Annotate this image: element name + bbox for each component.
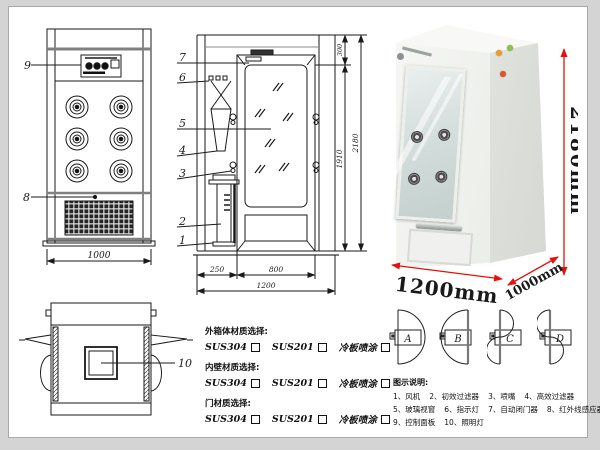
door-frame bbox=[237, 55, 315, 251]
door-config-c: C bbox=[487, 306, 531, 368]
material-options-row: SUS304 SUS201 冷板喷涂 bbox=[205, 340, 389, 354]
legend-item: 2、初效过滤器 bbox=[429, 390, 479, 403]
door-config-label: A bbox=[403, 334, 411, 345]
part-label-1: 1 bbox=[179, 234, 186, 247]
nozzles-front bbox=[66, 96, 132, 182]
fan-unit bbox=[209, 175, 239, 246]
legend-item: 5、玻璃视窗 bbox=[393, 403, 435, 416]
dim-1000: 1000 bbox=[88, 251, 111, 261]
material-section-title: 门材质选择: bbox=[205, 397, 389, 409]
material-option-label: SUS304 bbox=[205, 342, 247, 353]
dim-2180: 2180 bbox=[351, 133, 360, 153]
part-label-2: 2 bbox=[178, 215, 186, 228]
door-config-label: D bbox=[555, 334, 564, 345]
material-section-title: 外箱体材质选择: bbox=[205, 325, 389, 337]
checkbox[interactable] bbox=[318, 415, 327, 424]
part-label-7: 7 bbox=[179, 51, 186, 64]
part-label-3: 3 bbox=[179, 167, 186, 180]
material-option-label: 冷板喷涂 bbox=[339, 376, 377, 390]
material-option-label: SUS201 bbox=[272, 378, 314, 389]
legend-item: 7、自动闭门器 bbox=[488, 403, 538, 416]
checkbox[interactable] bbox=[381, 415, 390, 424]
material-option-label: SUS201 bbox=[272, 414, 314, 425]
legend-item: 8、红外线感应器 bbox=[547, 403, 600, 416]
checkbox[interactable] bbox=[251, 343, 260, 352]
part-label-5: 5 bbox=[179, 117, 186, 130]
checkbox[interactable] bbox=[381, 379, 390, 388]
material-options-row: SUS304 SUS201 冷板喷涂 bbox=[205, 412, 389, 426]
part-label-4: 4 bbox=[178, 144, 186, 157]
door-config-label: B bbox=[453, 334, 461, 345]
material-section-title: 内壁材质选择: bbox=[205, 361, 389, 373]
indicator-lights bbox=[209, 76, 227, 80]
material-option-label: SUS304 bbox=[205, 378, 247, 389]
section-view-drawing: 7 6 5 4 3 2 1 300 1910 2180 250 800 1200 bbox=[167, 19, 379, 309]
dim-800: 800 bbox=[269, 265, 284, 274]
legend-line: 5、玻璃视窗 6、指示灯 7、自动闭门器 8、红外线感应器 bbox=[393, 403, 585, 416]
door-config-d: D bbox=[537, 306, 581, 368]
part-label-10: 10 bbox=[178, 357, 192, 370]
glass-hatch-marks bbox=[255, 83, 293, 173]
legend-item: 3、喷嘴 bbox=[488, 390, 515, 403]
door-config-label: C bbox=[506, 334, 514, 345]
part-label-9: 9 bbox=[24, 59, 31, 72]
dim-1910: 1910 bbox=[335, 149, 344, 168]
return-air-grille bbox=[65, 201, 133, 235]
legend-item: 4、高效过滤器 bbox=[524, 390, 574, 403]
part-label-6: 6 bbox=[179, 71, 186, 84]
material-option-label: SUS304 bbox=[205, 414, 247, 425]
legend: 图示说明: 1、风机 2、初效过滤器 3、喷嘴 4、高效过滤器 5、玻璃视窗 6… bbox=[393, 377, 585, 429]
checkbox[interactable] bbox=[318, 343, 327, 352]
spec-sheet-canvas: 9 8 1000 bbox=[8, 6, 588, 438]
nozzles-section bbox=[230, 114, 319, 173]
dim-1200: 1200 bbox=[256, 281, 275, 290]
legend-title: 图示说明: bbox=[393, 377, 585, 388]
photo-dim-height: 2180mm bbox=[566, 106, 578, 216]
legend-item: 1、风机 bbox=[393, 390, 420, 403]
legend-item: 9、控制面板 bbox=[393, 416, 435, 429]
checkbox[interactable] bbox=[251, 415, 260, 424]
control-panel bbox=[81, 55, 121, 77]
material-selection: 外箱体材质选择: SUS304 SUS201 冷板喷涂 内壁材质选择: SUS3… bbox=[205, 323, 389, 433]
legend-item: 6、指示灯 bbox=[444, 403, 479, 416]
legend-line: 9、控制面板 10、照明灯 bbox=[393, 416, 585, 429]
hepa-filter bbox=[211, 109, 231, 151]
door-swing-configs: A B C D bbox=[387, 306, 587, 368]
door-config-b: B bbox=[437, 306, 481, 368]
door-handle-right bbox=[151, 355, 162, 391]
dim-300: 300 bbox=[336, 44, 344, 56]
checkbox[interactable] bbox=[318, 379, 327, 388]
dim-250: 250 bbox=[209, 265, 225, 274]
checkbox[interactable] bbox=[251, 379, 260, 388]
material-option-label: 冷板喷涂 bbox=[339, 340, 377, 354]
legend-line: 1、风机 2、初效过滤器 3、喷嘴 4、高效过滤器 bbox=[393, 390, 585, 403]
front-view-drawing: 9 8 1000 bbox=[19, 19, 169, 274]
top-view-drawing: 10 bbox=[19, 295, 194, 437]
door-handle-left bbox=[41, 355, 52, 391]
part-label-8: 8 bbox=[23, 191, 30, 204]
door-config-a: A bbox=[387, 306, 431, 368]
material-option-label: 冷板喷涂 bbox=[339, 412, 377, 426]
material-options-row: SUS304 SUS201 冷板喷涂 bbox=[205, 376, 389, 390]
photo-dimension-overlay: 2180mm 1200mm 1000mm bbox=[386, 13, 578, 308]
product-photo: 2180mm 1200mm 1000mm bbox=[386, 13, 578, 308]
material-option-label: SUS201 bbox=[272, 342, 314, 353]
legend-item: 10、照明灯 bbox=[444, 416, 484, 429]
